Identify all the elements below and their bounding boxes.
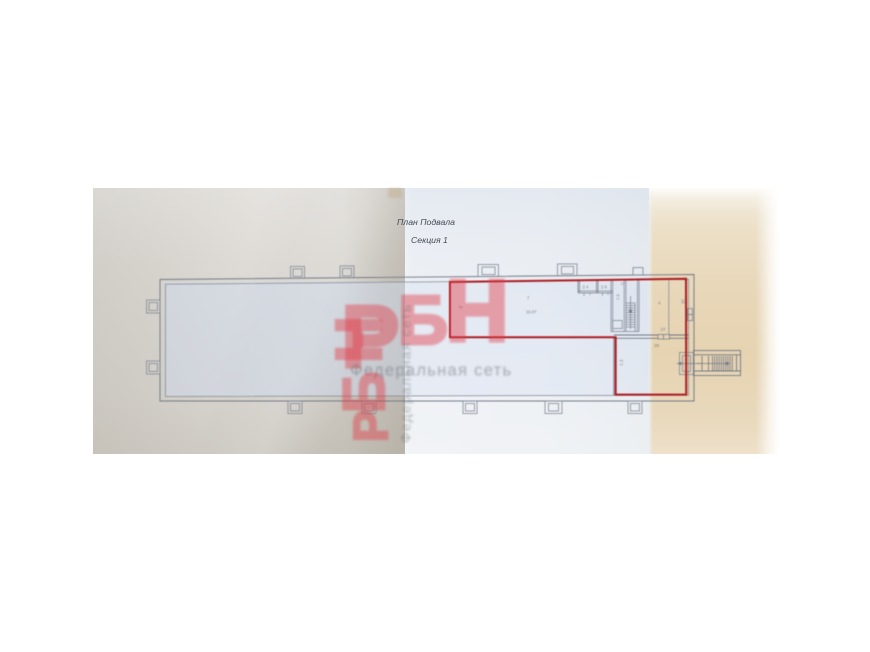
svg-text:Б: Б	[332, 371, 397, 413]
svg-text:Н: Н	[446, 261, 510, 360]
svg-text:Р: Р	[345, 410, 398, 442]
svg-text:Н: Н	[322, 316, 395, 363]
svg-text:Федеральная сеть: Федеральная сеть	[398, 304, 414, 443]
